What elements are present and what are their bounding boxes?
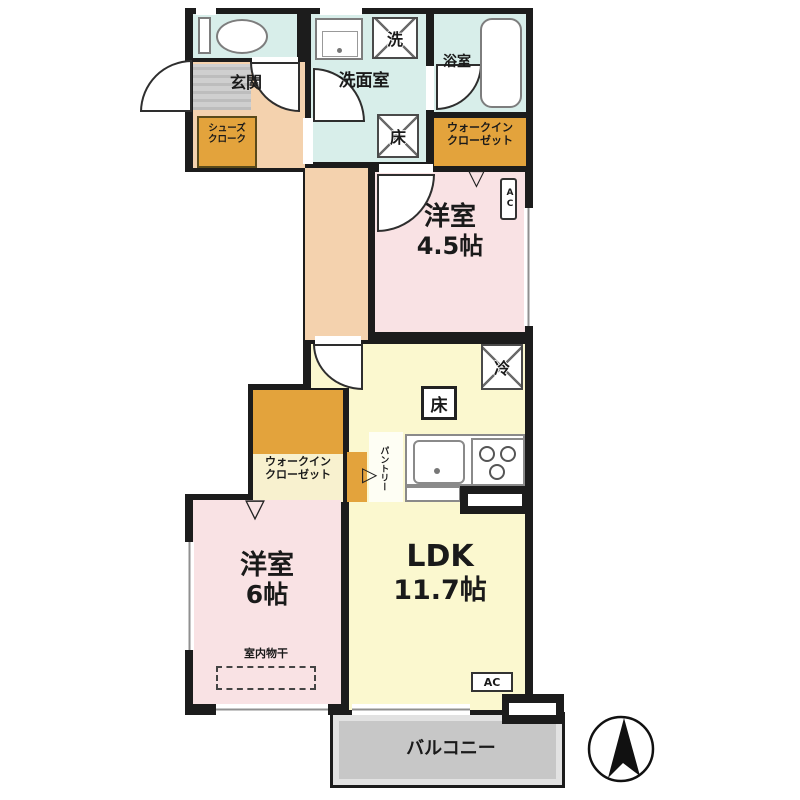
window-bedroom6-west [185, 542, 194, 650]
wic-top-line2: クローゼット [434, 135, 526, 148]
washroom-door-gap [303, 118, 313, 164]
floor-plan: バルコニー [0, 0, 800, 800]
indoor-drying-box [216, 666, 316, 690]
window-washroom-top [320, 8, 362, 15]
wic-bottom-label: ウォークイン クローゼット [248, 456, 348, 481]
vanity-basin [322, 31, 358, 57]
entrance-door-arc [140, 60, 192, 112]
shoes-cloak-label: シューズ クローク [197, 124, 257, 146]
kitchen-sink [413, 440, 465, 484]
kitchen-faucet [434, 468, 440, 474]
bathroom-door-gap [426, 66, 434, 110]
bedroom6-line2: 6帖 [197, 581, 337, 610]
fridge-symbol: 冷 [481, 344, 523, 390]
ac-marker-bottom: AC [471, 672, 513, 692]
floor-hatch-char: 床 [390, 124, 406, 148]
bathroom-label: 浴室 [434, 54, 480, 70]
window-marker-bedroom45: ▽ [468, 168, 485, 190]
window-toilet-top [196, 8, 216, 15]
bedroom45-label: 洋室 4.5帖 [380, 203, 520, 260]
wic-bottom-line2: クローゼット [248, 469, 348, 482]
window-bedroom6-south [216, 704, 328, 715]
burner-2 [500, 446, 516, 462]
stove [471, 438, 525, 486]
pantry-label: パントリー [378, 436, 388, 500]
wic-bottom-line1: ウォークイン [248, 456, 348, 469]
kitchen-counter [405, 434, 525, 486]
ldk-label: LDK 11.7帖 [360, 540, 520, 606]
wic-bottom [253, 390, 343, 454]
window-ldk-balcony [352, 704, 470, 715]
balcony-step-slot [509, 703, 556, 715]
bedroom45-door-gap [379, 164, 433, 173]
burner-3 [489, 464, 505, 480]
entrance-label: 玄関 [198, 74, 294, 92]
kitchen-partition-slot [468, 494, 522, 506]
hallway [305, 168, 368, 340]
ldk-line1: LDK [360, 540, 520, 575]
washer-symbol-char: 洗 [387, 26, 403, 50]
washroom-label: 洗面室 [316, 72, 412, 92]
floor-hatch-symbol: 床 [377, 114, 419, 158]
kitchen-counter-return [405, 486, 461, 502]
wic-top-label: ウォークイン クローゼット [434, 122, 526, 147]
shoes-cloak-line2: クローク [197, 135, 257, 146]
indoor-drying-label: 室内物干 [216, 648, 316, 661]
bedroom6-line1: 洋室 [197, 550, 337, 581]
floor-storage-symbol: 床 [421, 386, 457, 420]
burner-1 [479, 446, 495, 462]
bedroom45-line1: 洋室 [380, 203, 520, 233]
ldk-door-gap [315, 336, 361, 344]
fridge-symbol-char: 冷 [494, 355, 510, 379]
north-arrow-compass [584, 712, 658, 786]
window-bedroom45-east [524, 208, 533, 326]
vanity-faucet [337, 48, 342, 53]
washer-symbol: 洗 [372, 17, 418, 59]
bedroom45-line2: 4.5帖 [380, 233, 520, 261]
balcony-label: バルコニー [371, 739, 531, 760]
toilet-bowl [216, 19, 268, 54]
ldk-line2: 11.7帖 [360, 575, 520, 606]
toilet-tank [198, 17, 211, 54]
closet-door-marker: ▽ [245, 496, 265, 522]
bathtub [480, 18, 522, 108]
floor-storage-char: 床 [431, 391, 448, 416]
pantry-door-marker: ▷ [362, 464, 377, 484]
bedroom6-label: 洋室 6帖 [197, 550, 337, 610]
wic-top-line1: ウォークイン [434, 122, 526, 135]
vanity-sink [315, 18, 363, 60]
